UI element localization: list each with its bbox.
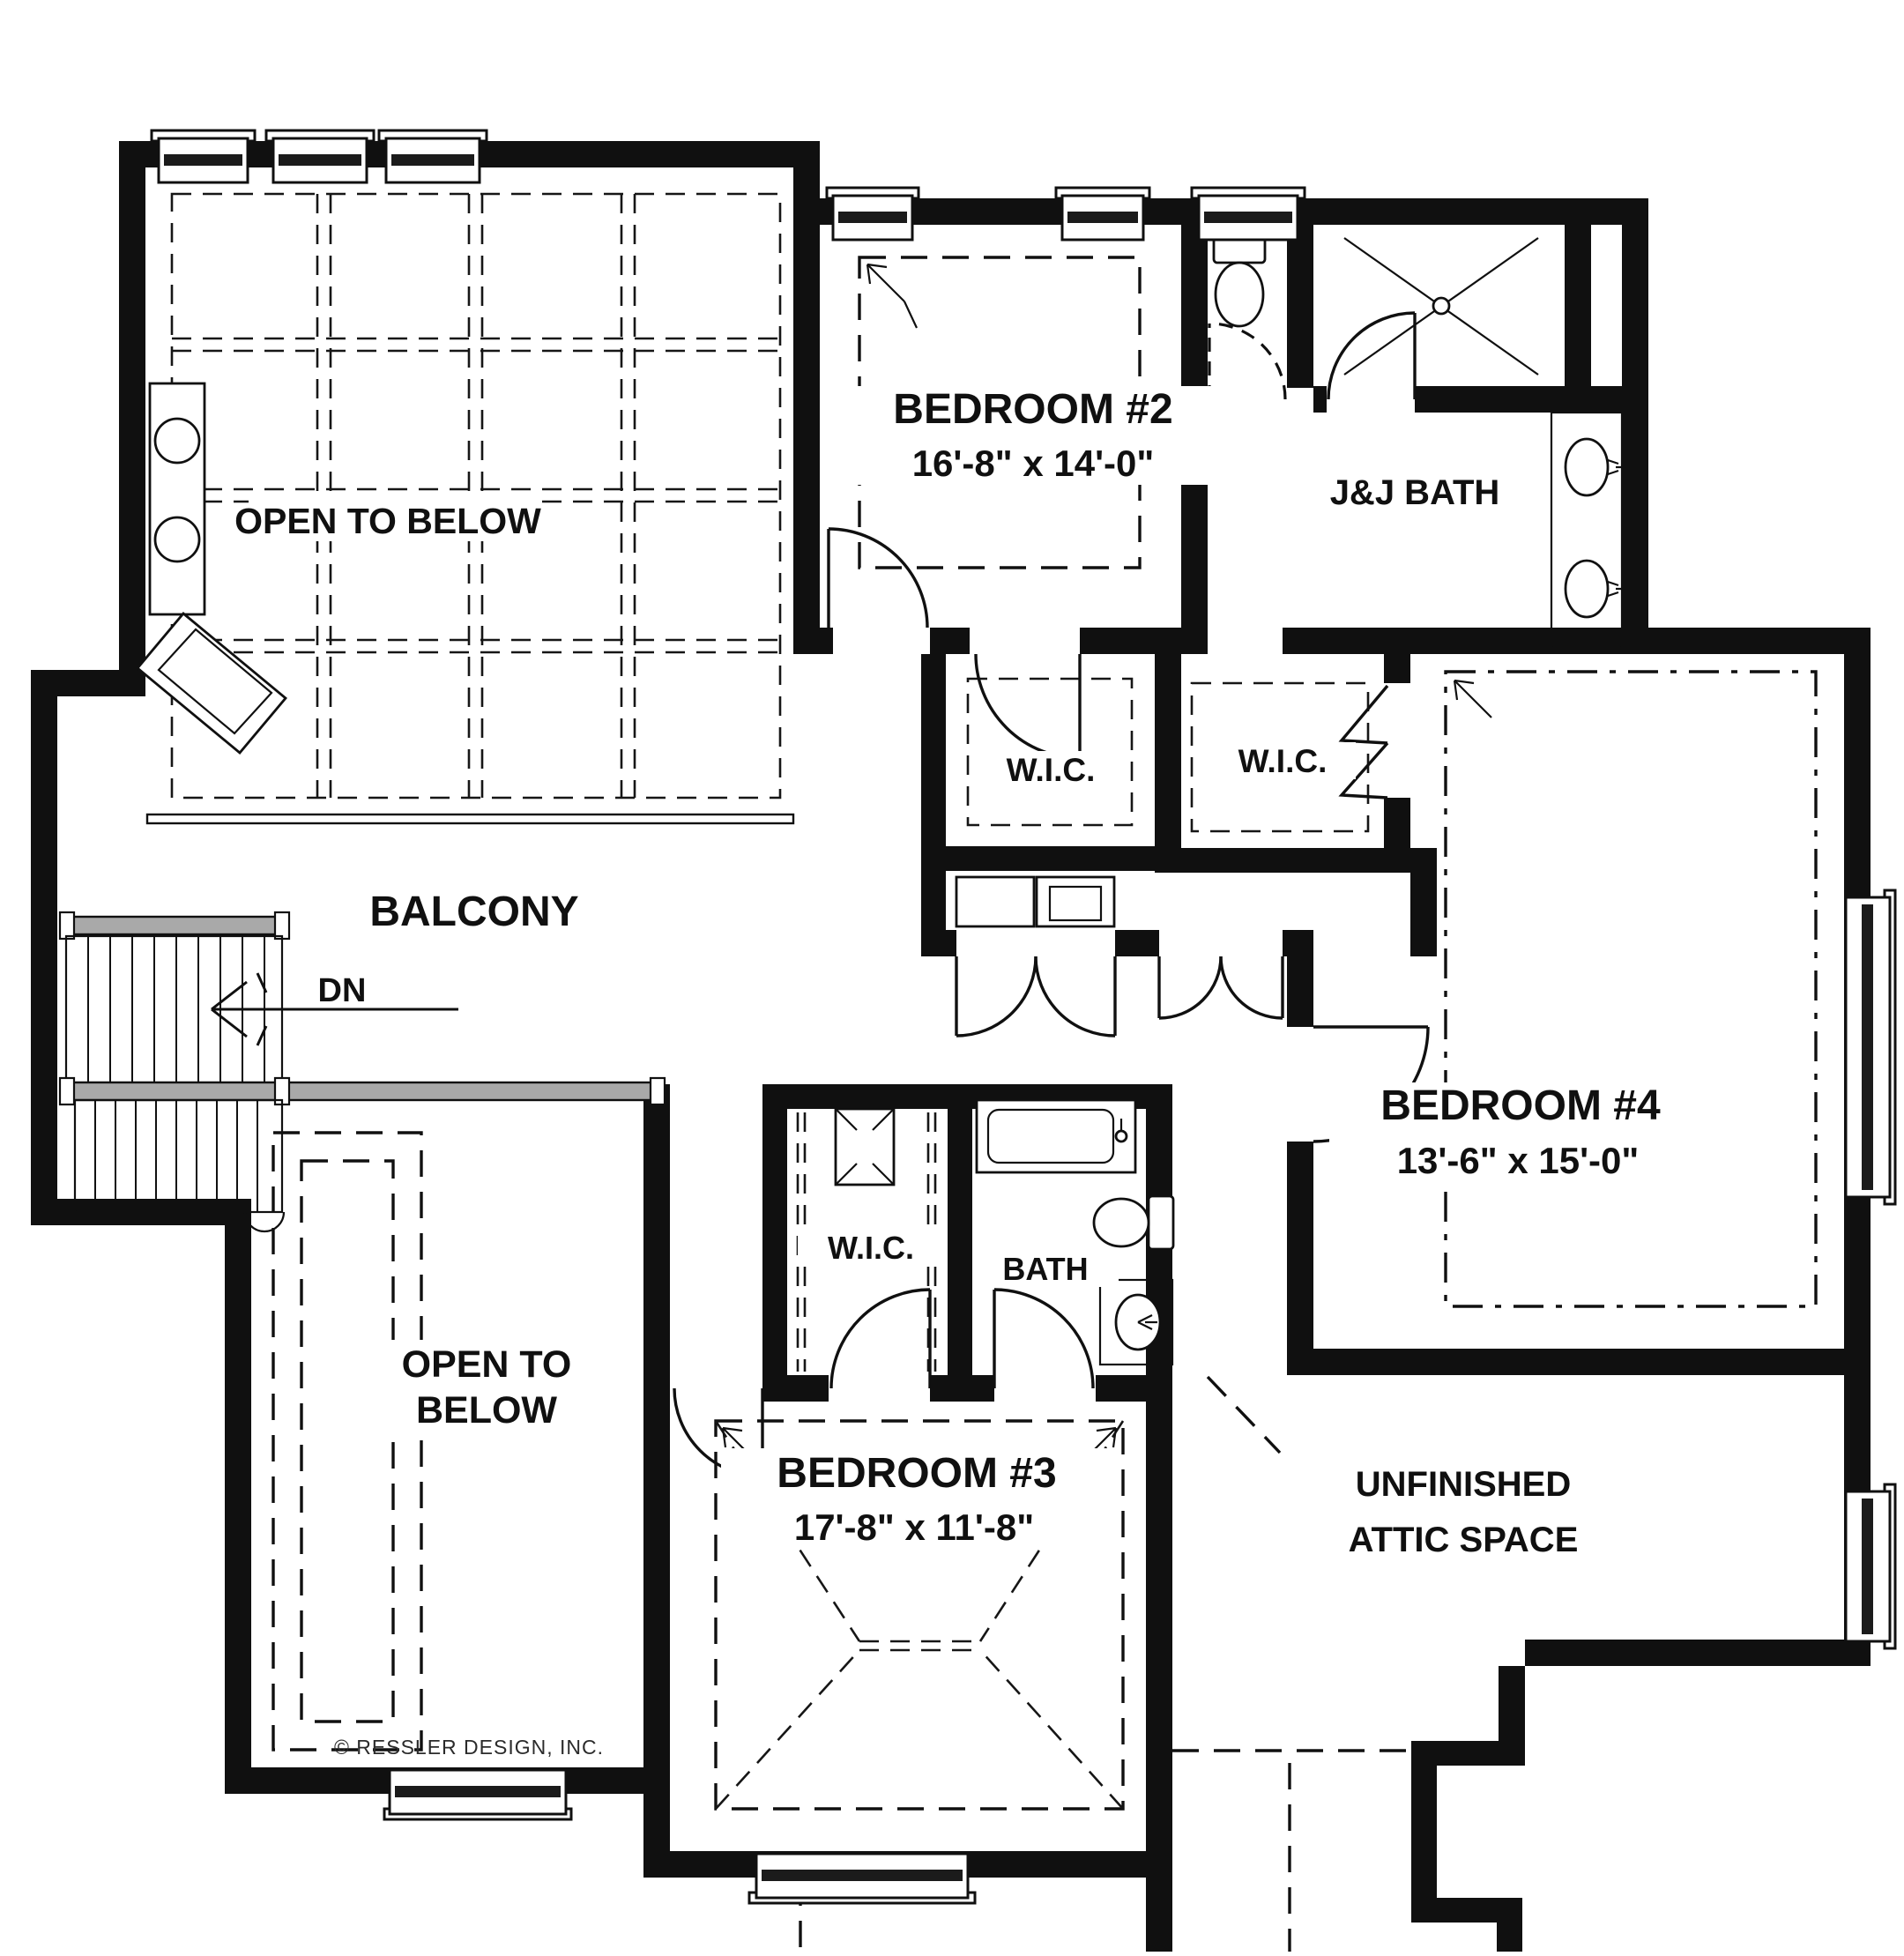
balcony-floor-edge (147, 814, 793, 823)
stair-railing-top (66, 917, 282, 934)
laundry-double-doors (956, 956, 1115, 1036)
wic-upper-right-bifold-door (1342, 686, 1387, 798)
staircase (60, 912, 665, 1231)
bathtub (977, 1100, 1135, 1172)
jj-bath-label: J&J BATH (1330, 473, 1500, 512)
window-bedroom2-right (1056, 188, 1149, 240)
wet-bar-counter (150, 383, 205, 614)
open-to-below-lower-well (273, 1133, 421, 1750)
washer-dryer-cabinets (956, 877, 1114, 926)
window-attic (1846, 1484, 1895, 1648)
bedroom3-label: BEDROOM #3 (777, 1450, 1056, 1497)
window-top-3 (379, 130, 487, 182)
bedroom2-door (829, 529, 927, 628)
shower (1344, 238, 1538, 375)
bedroom2-label: BEDROOM #2 (893, 386, 1172, 433)
window-open-below-lower (384, 1770, 571, 1819)
bedroom4-label: BEDROOM #4 (1380, 1082, 1661, 1129)
closet-shelf (836, 1109, 894, 1185)
floor-plan-page: OPEN TO BELOW BALCONY DN BEDROOM #2 16'-… (0, 0, 1904, 1952)
wic-lower-door (831, 1290, 930, 1388)
window-bedroom2-left (827, 188, 919, 240)
wic-upper-right-label: W.I.C. (1238, 743, 1328, 779)
bath-door (994, 1290, 1093, 1388)
wic-upper-left-door (976, 654, 1080, 758)
window-top-2 (266, 130, 374, 182)
window-bedroom4 (1846, 890, 1895, 1204)
attic-label-line1: UNFINISHED (1356, 1465, 1571, 1504)
open-to-below-upper-label: OPEN TO BELOW (234, 501, 541, 541)
wic-lower-label: W.I.C. (828, 1230, 914, 1266)
hall-closet-double-doors (1159, 956, 1283, 1018)
bath-label: BATH (1002, 1251, 1088, 1287)
window-top-1 (152, 130, 255, 182)
wic-upper-left-label: W.I.C. (1007, 752, 1096, 788)
window-bedroom3 (749, 1854, 975, 1903)
bedroom2-dimensions: 16'-8" x 14'-0" (912, 443, 1155, 484)
stair-railing-landing (66, 1082, 658, 1100)
double-vanity (1551, 413, 1623, 648)
designer-credit: © RESSLER DESIGN, INC. (334, 1736, 604, 1759)
floor-plan-drawing: OPEN TO BELOW BALCONY DN BEDROOM #2 16'-… (0, 0, 1904, 1952)
balcony-label: BALCONY (369, 889, 578, 935)
bedroom4-dimensions: 13'-6" x 15'-0" (1397, 1140, 1640, 1181)
window-toilet-room (1192, 188, 1305, 240)
attic-label-line2: ATTIC SPACE (1349, 1521, 1579, 1559)
attic-opening-diagonal (1208, 1377, 1280, 1453)
toilet-bath (1094, 1196, 1173, 1249)
toilet-jj-bath (1214, 231, 1265, 326)
open-to-below-lower-line2: BELOW (416, 1389, 557, 1432)
open-to-below-lower-line1: OPEN TO (402, 1343, 572, 1386)
bedroom3-dimensions: 17'-8" x 11'-8" (794, 1506, 1034, 1548)
angled-cabinet (138, 614, 286, 753)
stair-treads-lower (95, 1100, 257, 1212)
bedroom4-tray-ceiling (1446, 672, 1816, 1306)
stairs-dn-label: DN (318, 972, 367, 1009)
